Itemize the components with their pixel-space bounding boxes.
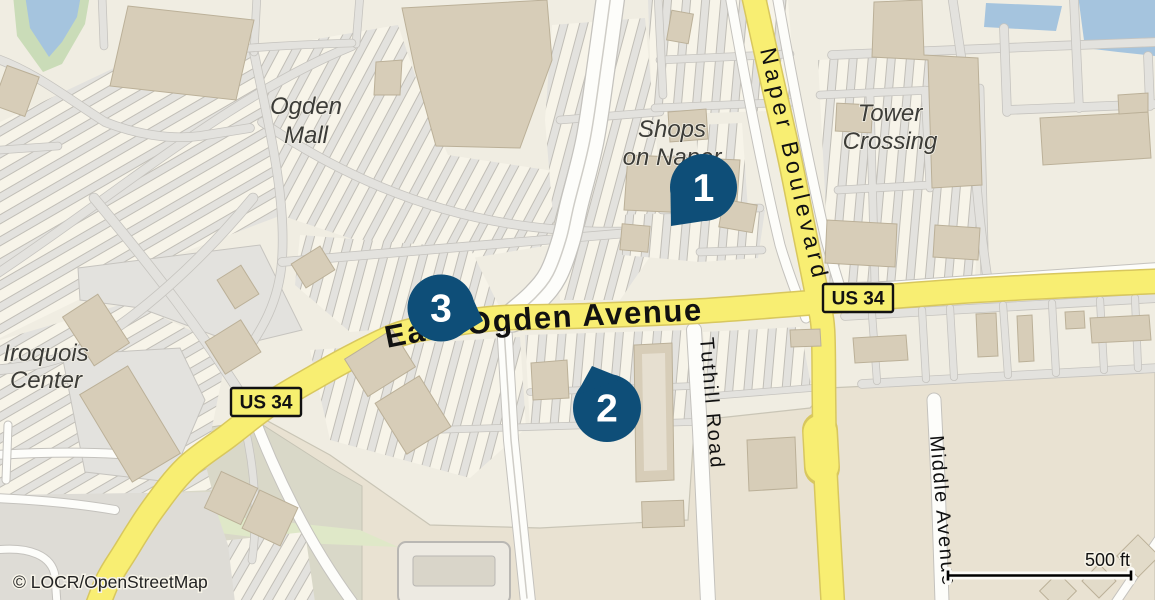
svg-text:US 34: US 34	[240, 393, 293, 414]
svg-text:Mall: Mall	[284, 122, 329, 149]
svg-text:3: 3	[430, 288, 452, 331]
svg-text:1: 1	[693, 167, 715, 210]
svg-text:Iroquois: Iroquois	[3, 340, 88, 367]
svg-text:Center: Center	[10, 367, 83, 394]
svg-text:Crossing: Crossing	[843, 128, 938, 155]
svg-text:Ogden: Ogden	[270, 93, 342, 120]
svg-text:Tower: Tower	[858, 100, 923, 127]
svg-text:Shops: Shops	[638, 116, 706, 143]
svg-text:2: 2	[596, 388, 618, 431]
svg-text:US 34: US 34	[832, 289, 885, 310]
svg-text:© LOCR/OpenStreetMap: © LOCR/OpenStreetMap	[13, 572, 208, 592]
svg-text:500 ft: 500 ft	[1085, 550, 1130, 570]
